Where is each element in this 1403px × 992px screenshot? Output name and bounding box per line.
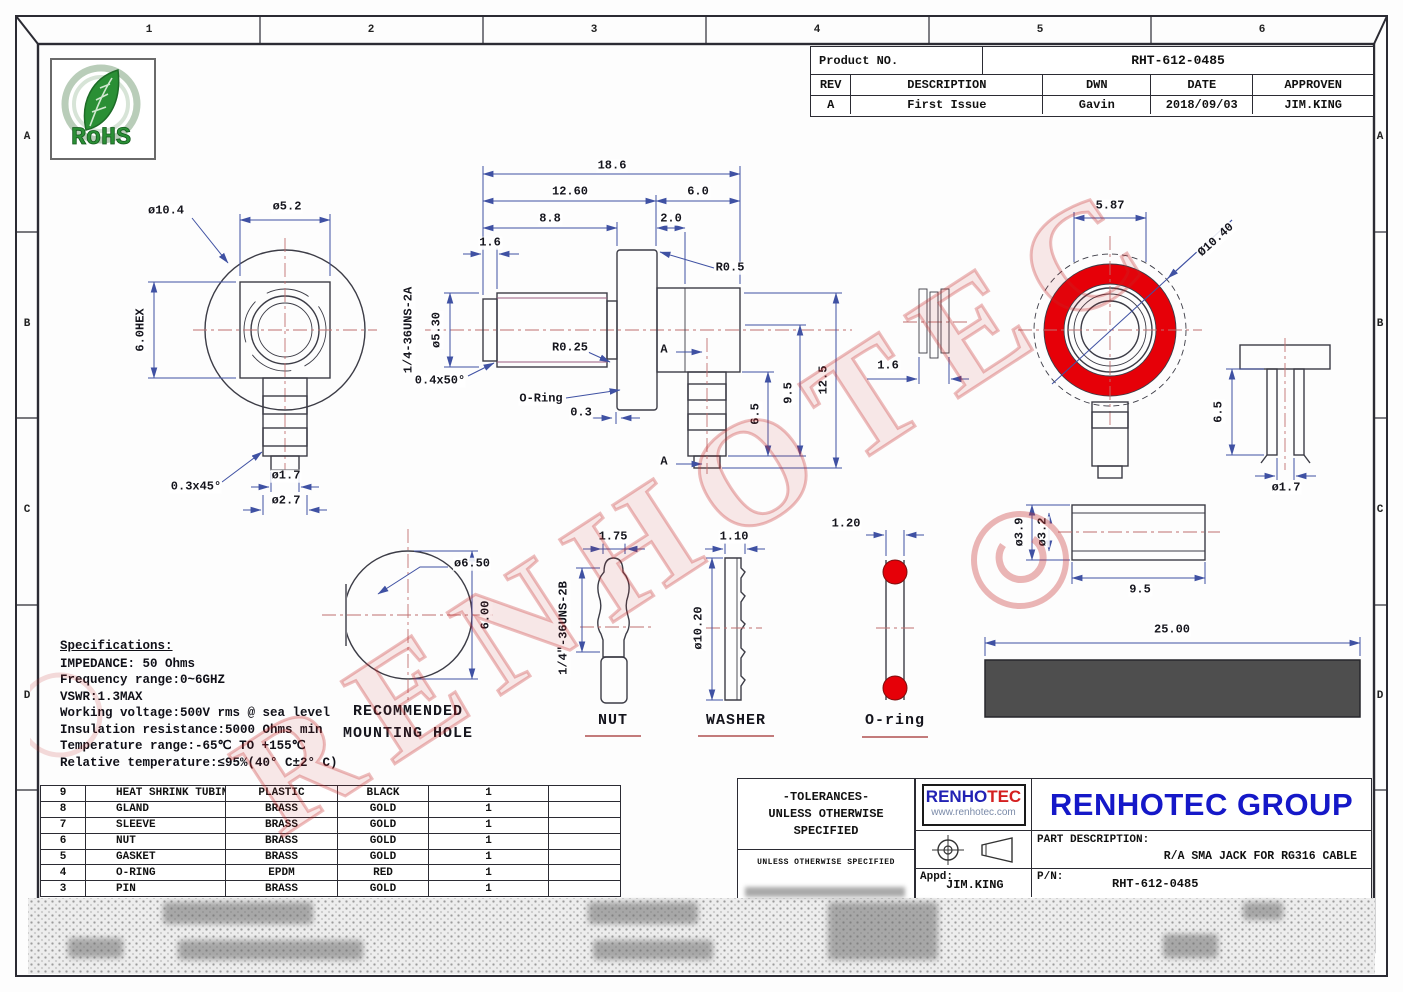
table-cell: 7 bbox=[41, 817, 86, 833]
date-value: 2018/09/03 bbox=[1151, 96, 1253, 114]
spec-line: Insulation resistance:5000 Ohms min bbox=[60, 722, 390, 739]
table-row: 4O-RINGEPDMRED1 bbox=[41, 865, 621, 881]
table-cell: 1 bbox=[429, 786, 549, 802]
description-header: DESCRIPTION bbox=[851, 75, 1043, 95]
main-section-view bbox=[425, 166, 852, 474]
table-cell: 1 bbox=[429, 881, 549, 897]
revision-data-row: A First Issue Gavin 2018/09/03 JIM.KING bbox=[811, 96, 1373, 114]
spec-line: VSWR:1.3MAX bbox=[60, 689, 390, 706]
specifications-heading: Specifications: bbox=[60, 638, 390, 655]
table-cell bbox=[549, 849, 621, 865]
table-cell: 1 bbox=[429, 865, 549, 881]
specifications-block: Specifications: IMPEDANCE: 50 OhmsFreque… bbox=[60, 638, 390, 771]
table-cell: 9 bbox=[41, 786, 86, 802]
dwn-header: DWN bbox=[1043, 75, 1151, 95]
bom-rows: 9HEAT SHRINK TUBINGPLASTICBLACK18GLANDBR… bbox=[41, 786, 621, 897]
approven-value: JIM.KING bbox=[1253, 96, 1373, 114]
description-value: First Issue bbox=[851, 96, 1043, 114]
tolerances-line2: UNLESS OTHERWISE bbox=[738, 806, 914, 823]
table-row: 9HEAT SHRINK TUBINGPLASTICBLACK1 bbox=[41, 786, 621, 802]
bom-table: 9HEAT SHRINK TUBINGPLASTICBLACK18GLANDBR… bbox=[40, 785, 621, 897]
washer-detail-view bbox=[698, 543, 774, 736]
spec-line: Relative temperature:≤95%(40° C±2° C) bbox=[60, 755, 390, 772]
table-cell: 8 bbox=[41, 801, 86, 817]
table-cell: GLAND bbox=[86, 801, 226, 817]
specifications-list: IMPEDANCE: 50 OhmsFrequency range:0~6GHZ… bbox=[60, 656, 390, 772]
logo-text-part2: TEC bbox=[987, 787, 1021, 806]
table-cell: GOLD bbox=[338, 881, 429, 897]
table-cell: BRASS bbox=[226, 849, 338, 865]
part-description-value: R/A SMA JACK FOR RG316 CABLE bbox=[1032, 850, 1357, 863]
tolerance-small-note: UNLESS OTHERWISE SPECIFIED bbox=[738, 858, 914, 867]
product-no-label: Product NO. bbox=[811, 47, 983, 74]
table-cell: RED bbox=[338, 865, 429, 881]
tolerance-box: -TOLERANCES- UNLESS OTHERWISE SPECIFIED … bbox=[737, 778, 915, 899]
table-cell: 1 bbox=[429, 801, 549, 817]
rev-value: A bbox=[811, 96, 851, 114]
heat-shrink-view bbox=[985, 637, 1360, 717]
product-no-value: RHT-612-0485 bbox=[983, 47, 1373, 74]
approven-header: APPROVEN bbox=[1253, 75, 1373, 95]
table-row: 6NUTBRASSGOLD1 bbox=[41, 833, 621, 849]
table-row: 8GLANDBRASSGOLD1 bbox=[41, 801, 621, 817]
dwn-value: Gavin bbox=[1043, 96, 1151, 114]
table-cell: EPDM bbox=[226, 865, 338, 881]
table-cell: 5 bbox=[41, 849, 86, 865]
pn-label: P/N: bbox=[1037, 871, 1063, 883]
table-cell: PLASTIC bbox=[226, 786, 338, 802]
table-cell: SLEEVE bbox=[86, 817, 226, 833]
spec-line: Frequency range:0~6GHZ bbox=[60, 672, 390, 689]
table-cell bbox=[549, 801, 621, 817]
table-cell: GOLD bbox=[338, 833, 429, 849]
censored-text bbox=[745, 887, 905, 897]
drawing-sheet: RoHS Product NO. RHT-612-0485 REV DESCRI… bbox=[0, 0, 1403, 992]
table-cell: BRASS bbox=[226, 833, 338, 849]
tolerances-line3: SPECIFIED bbox=[738, 823, 914, 840]
censor-blob bbox=[178, 940, 363, 960]
company-logo: RENHOTEC www.renhotec.com bbox=[916, 779, 1032, 830]
table-cell: 1 bbox=[429, 817, 549, 833]
table-cell: BRASS bbox=[226, 817, 338, 833]
spec-line: Working voltage:500V rms @ sea level bbox=[60, 705, 390, 722]
gasket-view bbox=[867, 289, 969, 384]
table-cell: GOLD bbox=[338, 801, 429, 817]
part-description-label: PART DESCRIPTION: bbox=[1037, 834, 1149, 846]
censor-blob bbox=[1163, 934, 1218, 958]
logo-text-part1: RENHO bbox=[926, 787, 987, 806]
table-cell: GASKET bbox=[86, 849, 226, 865]
table-row: 3PINBRASSGOLD1 bbox=[41, 881, 621, 897]
spec-line: IMPEDANCE: 50 Ohms bbox=[60, 656, 390, 673]
censored-band bbox=[28, 898, 1375, 974]
table-cell: O-RING bbox=[86, 865, 226, 881]
logo-url: www.renhotec.com bbox=[924, 808, 1024, 818]
nut-detail-view bbox=[576, 543, 652, 736]
table-cell: 3 bbox=[41, 881, 86, 897]
table-cell: BLACK bbox=[338, 786, 429, 802]
date-header: DATE bbox=[1151, 75, 1253, 95]
table-cell bbox=[549, 833, 621, 849]
table-cell: BRASS bbox=[226, 801, 338, 817]
table-cell bbox=[549, 817, 621, 833]
table-cell: PIN bbox=[86, 881, 226, 897]
table-cell: 4 bbox=[41, 865, 86, 881]
rohs-label: RoHS bbox=[71, 123, 131, 152]
table-cell: HEAT SHRINK TUBING bbox=[86, 786, 226, 802]
pn-value: RHT-612-0485 bbox=[1112, 877, 1198, 891]
front-face-view bbox=[1018, 212, 1232, 478]
oring-detail-view bbox=[862, 530, 928, 737]
spec-line: Temperature range:-65℃ TO +155℃ bbox=[60, 738, 390, 755]
table-row: 7SLEEVEBRASSGOLD1 bbox=[41, 817, 621, 833]
table-cell: 6 bbox=[41, 833, 86, 849]
company-name: RENHOTEC GROUP bbox=[1032, 779, 1371, 830]
censor-blob bbox=[68, 938, 123, 958]
table-cell bbox=[549, 786, 621, 802]
rev-header: REV bbox=[811, 75, 851, 95]
table-cell: GOLD bbox=[338, 817, 429, 833]
table-row: 5GASKETBRASSGOLD1 bbox=[41, 849, 621, 865]
censor-blob bbox=[163, 902, 313, 924]
pin-detail-view bbox=[1226, 338, 1330, 480]
table-cell bbox=[549, 881, 621, 897]
censor-blob bbox=[588, 902, 698, 924]
table-cell bbox=[549, 865, 621, 881]
table-cell: BRASS bbox=[226, 881, 338, 897]
sleeve-detail-view bbox=[1026, 505, 1220, 584]
table-cell: 1 bbox=[429, 849, 549, 865]
table-cell: 1 bbox=[429, 833, 549, 849]
tolerances-line1: -TOLERANCES- bbox=[738, 789, 914, 806]
table-cell: NUT bbox=[86, 833, 226, 849]
rohs-logo: RoHS bbox=[50, 58, 156, 160]
projection-symbol bbox=[916, 831, 1032, 868]
product-table: Product NO. RHT-612-0485 REV DESCRIPTION… bbox=[810, 46, 1374, 117]
table-cell: GOLD bbox=[338, 849, 429, 865]
title-block: RENHOTEC www.renhotec.com RENHOTEC GROUP… bbox=[915, 778, 1372, 899]
appd-value: JIM.KING bbox=[946, 878, 1004, 892]
censor-blob bbox=[593, 940, 713, 960]
censor-blob bbox=[1243, 902, 1283, 920]
revision-header-row: REV DESCRIPTION DWN DATE APPROVEN bbox=[811, 75, 1373, 96]
censor-blob bbox=[828, 902, 938, 960]
rear-view bbox=[148, 214, 377, 515]
